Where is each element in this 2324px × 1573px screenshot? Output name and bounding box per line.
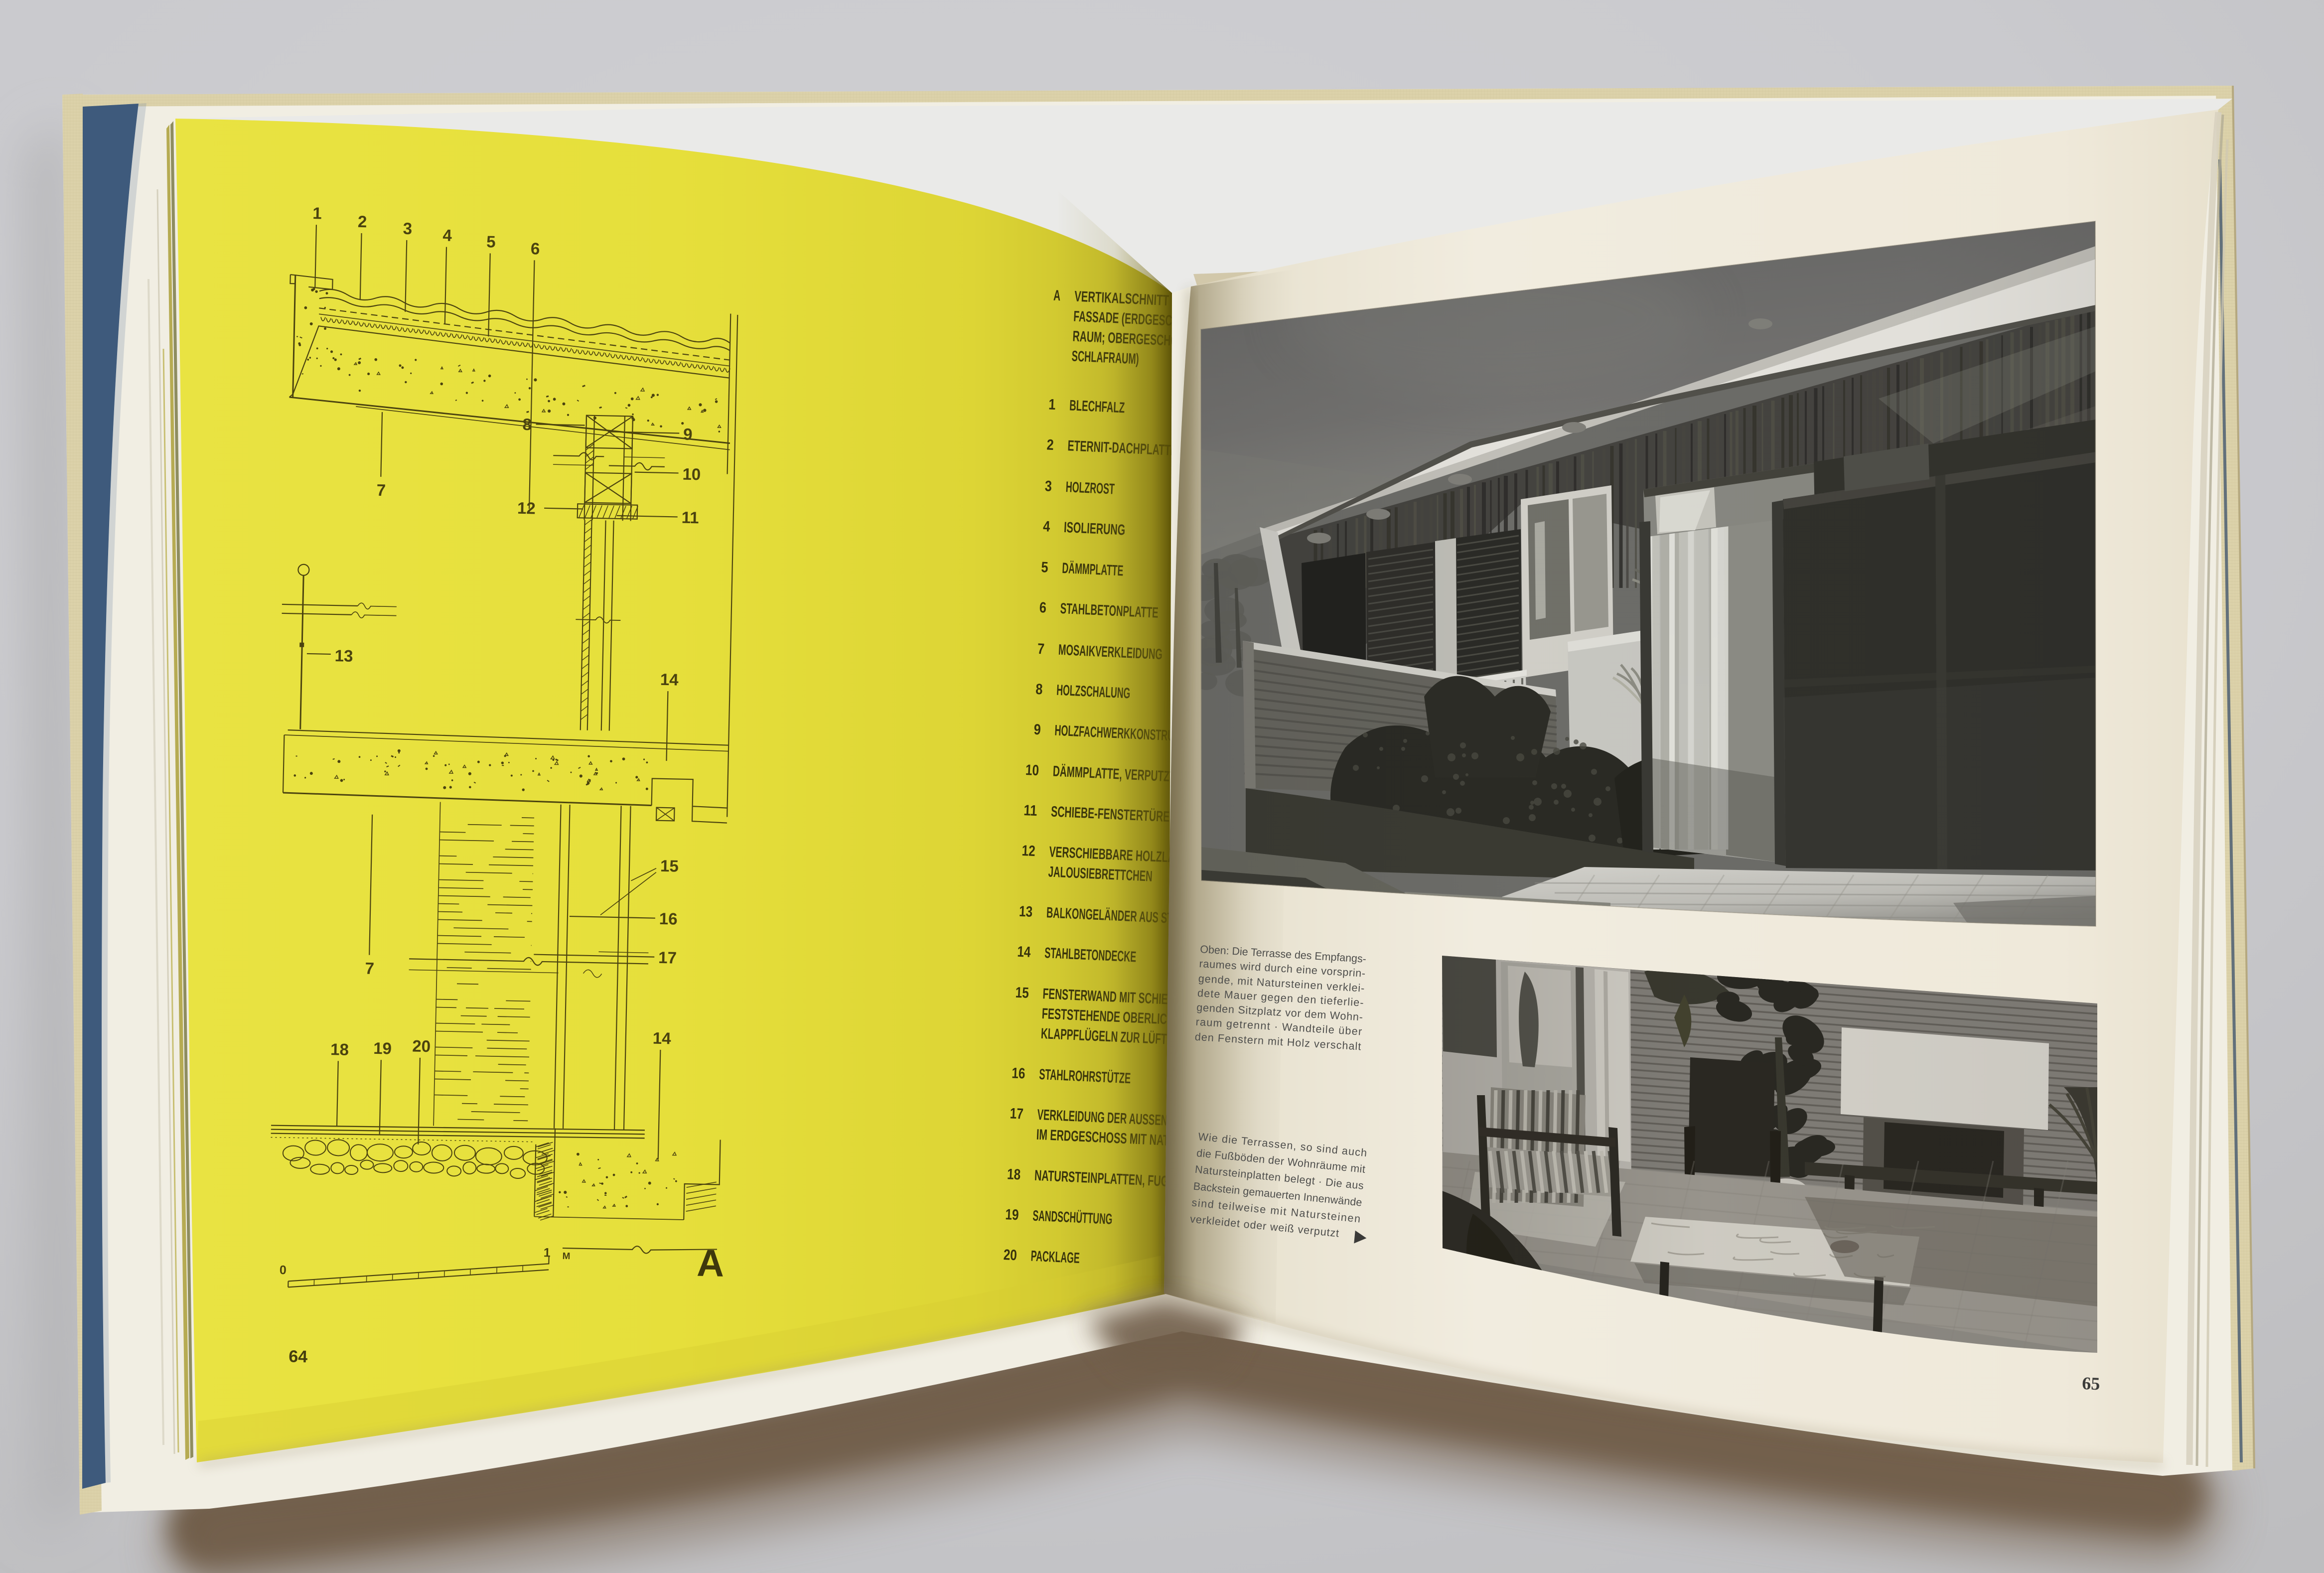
- svg-text:15: 15: [1015, 985, 1029, 1001]
- svg-text:2: 2: [1046, 436, 1054, 453]
- svg-text:7: 7: [1037, 641, 1044, 658]
- svg-text:16: 16: [659, 909, 677, 928]
- svg-text:13: 13: [1018, 903, 1032, 920]
- svg-text:10: 10: [1025, 762, 1039, 779]
- svg-text:14: 14: [1017, 944, 1031, 961]
- svg-text:20: 20: [412, 1037, 431, 1056]
- svg-text:1: 1: [1048, 396, 1056, 413]
- svg-text:10: 10: [682, 465, 701, 484]
- svg-text:5: 5: [1041, 559, 1048, 576]
- svg-text:18: 18: [1007, 1166, 1020, 1183]
- svg-text:12: 12: [517, 499, 536, 518]
- svg-text:6: 6: [1039, 599, 1046, 616]
- svg-text:9: 9: [1033, 721, 1041, 738]
- svg-text:65: 65: [2082, 1373, 2100, 1394]
- svg-text:7: 7: [365, 959, 374, 978]
- svg-text:64: 64: [289, 1347, 308, 1366]
- svg-text:20: 20: [1003, 1247, 1017, 1264]
- svg-text:11: 11: [1023, 802, 1037, 819]
- svg-text:2: 2: [358, 212, 367, 231]
- svg-text:9: 9: [683, 425, 693, 443]
- svg-text:7: 7: [376, 481, 386, 499]
- svg-text:5: 5: [486, 232, 496, 251]
- svg-text:14: 14: [652, 1029, 671, 1048]
- svg-text:15: 15: [660, 857, 679, 875]
- svg-text:18: 18: [330, 1040, 349, 1059]
- svg-text:0: 0: [280, 1263, 287, 1277]
- svg-text:17: 17: [1010, 1105, 1023, 1122]
- svg-text:4: 4: [1043, 518, 1051, 535]
- svg-text:1: 1: [543, 1246, 551, 1260]
- svg-text:A: A: [697, 1242, 725, 1285]
- svg-text:12: 12: [1021, 843, 1035, 859]
- svg-text:16: 16: [1012, 1065, 1025, 1082]
- svg-text:14: 14: [660, 670, 679, 689]
- svg-text:13: 13: [334, 646, 353, 665]
- svg-text:M: M: [562, 1251, 570, 1262]
- svg-text:11: 11: [681, 508, 699, 527]
- svg-text:8: 8: [1035, 681, 1043, 698]
- svg-text:8: 8: [522, 415, 532, 433]
- svg-text:1: 1: [312, 204, 322, 222]
- svg-text:17: 17: [658, 948, 677, 967]
- svg-text:6: 6: [531, 239, 540, 258]
- svg-text:4: 4: [442, 226, 452, 244]
- svg-text:19: 19: [373, 1039, 392, 1058]
- svg-text:3: 3: [1044, 478, 1052, 495]
- svg-text:3: 3: [403, 219, 412, 238]
- svg-text:19: 19: [1005, 1206, 1019, 1223]
